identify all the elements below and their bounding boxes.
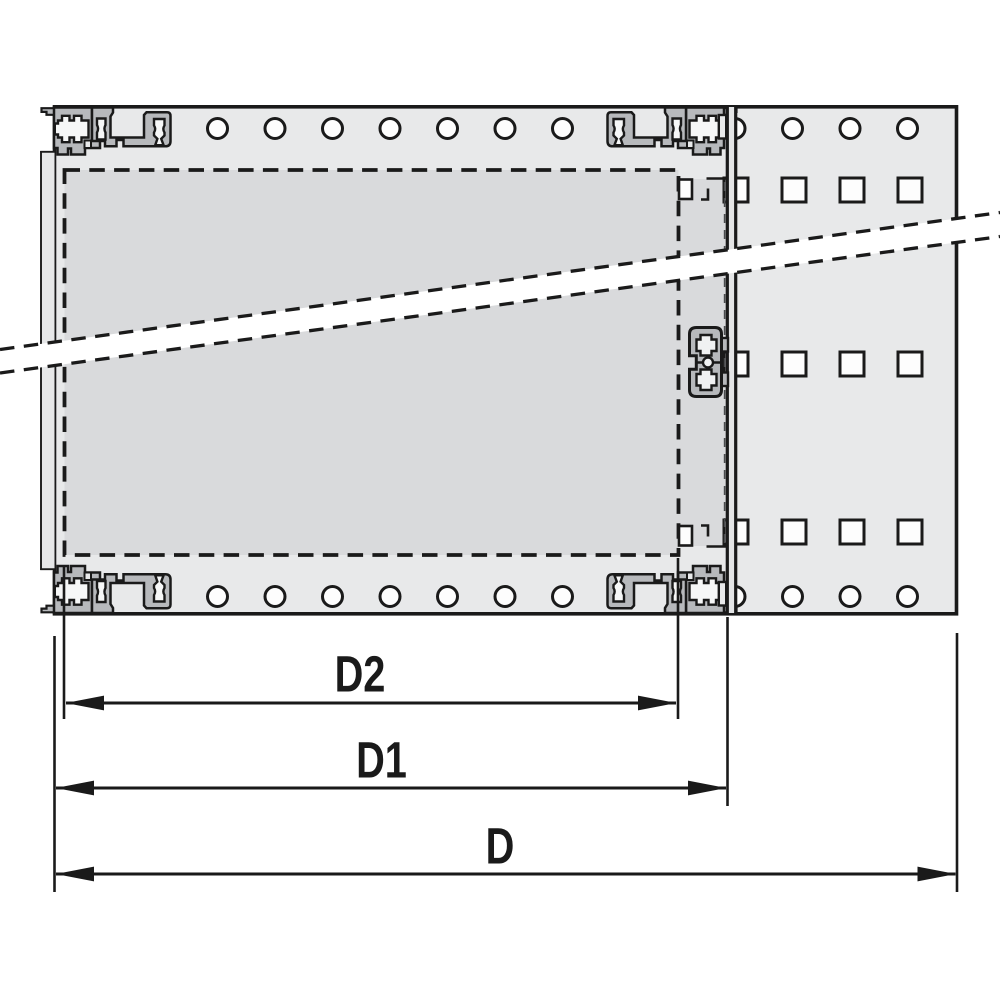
svg-text:D2: D2 — [335, 646, 386, 703]
svg-text:D1: D1 — [356, 732, 407, 789]
svg-text:D: D — [486, 818, 515, 875]
